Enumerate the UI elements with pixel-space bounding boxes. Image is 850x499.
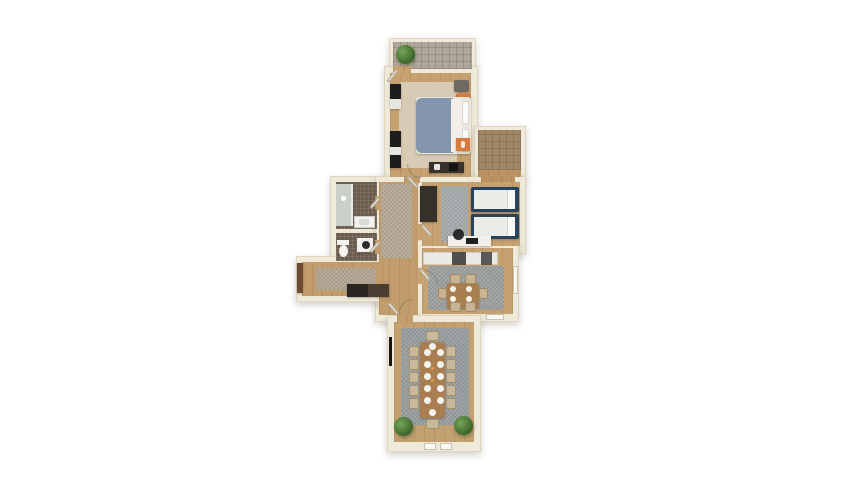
dining-chair-left-1 xyxy=(409,346,419,357)
kitchen-plate-2 xyxy=(466,286,472,292)
floor-shower xyxy=(336,184,352,226)
dining-plate-r2 xyxy=(437,361,444,368)
opening-kids-balcony xyxy=(481,176,515,182)
shower-head xyxy=(341,196,346,201)
living-plant-right xyxy=(454,416,473,435)
dining-plate-end-top xyxy=(429,343,436,350)
dining-chair-left-2 xyxy=(409,359,419,370)
dining-chair-left-4 xyxy=(409,385,419,396)
kitchen-chair-right xyxy=(479,288,488,299)
dining-plate-l4 xyxy=(424,385,431,392)
dining-chair-left-3 xyxy=(409,372,419,383)
entrance-sideboard-right xyxy=(368,284,389,297)
dining-plate-l3 xyxy=(424,373,431,380)
bedroom-dresser-white-1 xyxy=(390,99,401,109)
bed-pillow-1 xyxy=(462,101,469,124)
dining-chair-right-4 xyxy=(446,385,456,396)
bedroom-wardrobe-unit-2 xyxy=(390,131,401,147)
floor-balcony-right xyxy=(478,130,521,170)
nightstand-lamp-icon-bottom xyxy=(461,141,465,148)
dining-plate-end-bottom xyxy=(429,409,436,416)
dining-chair-head-top xyxy=(426,331,439,341)
dining-chair-head-bottom xyxy=(426,419,439,429)
dining-plate-l2 xyxy=(424,361,431,368)
dining-plate-r1 xyxy=(437,349,444,356)
kitchen-window-right xyxy=(513,266,518,294)
dining-candle-1 xyxy=(431,367,434,370)
kitchen-chair-top-2 xyxy=(465,274,476,284)
bedroom-dresser-white-2 xyxy=(390,147,401,155)
living-window-1 xyxy=(424,443,436,450)
living-plant-left xyxy=(394,417,413,436)
dining-plate-l5 xyxy=(424,397,431,404)
living-window-2 xyxy=(440,443,452,450)
dresser-lamp-item xyxy=(434,164,440,170)
balcony-plant xyxy=(396,45,415,64)
rug-hallway-runner xyxy=(381,184,412,258)
entry-door xyxy=(297,263,303,293)
dining-chair-right-1 xyxy=(446,346,456,357)
kids-wardrobe xyxy=(420,186,437,222)
toilet-bowl xyxy=(339,245,348,257)
dining-candle-2 xyxy=(431,379,434,382)
kids-bed-2-pillow xyxy=(507,217,515,236)
kitchen-plate-1 xyxy=(450,286,456,292)
dining-chair-right-5 xyxy=(446,398,456,409)
kitchen-sink-unit xyxy=(481,252,492,265)
kids-desk-chair xyxy=(453,229,464,240)
dining-chair-right-2 xyxy=(446,359,456,370)
living-tv xyxy=(389,337,392,366)
kitchen-cooktop xyxy=(452,252,466,265)
kitchen-chair-top-1 xyxy=(450,274,461,284)
kitchen-chair-bottom-1 xyxy=(450,302,461,312)
dining-chair-left-5 xyxy=(409,398,419,409)
dining-plate-r3 xyxy=(437,373,444,380)
shower-glass-panel xyxy=(351,184,353,226)
double-bed-duvet xyxy=(416,98,453,153)
dining-chair-right-3 xyxy=(446,372,456,383)
kitchen-window-bottom xyxy=(486,314,504,320)
opening-living-hallway xyxy=(397,315,413,323)
bedroom-ottoman xyxy=(454,80,469,92)
floor-plan-image xyxy=(0,0,850,499)
dining-plate-l1 xyxy=(424,349,431,356)
kids-desk-laptop xyxy=(466,238,478,244)
bedroom-wardrobe-unit-3 xyxy=(390,155,401,168)
dresser-dark-item xyxy=(449,163,458,171)
kids-bed-1-pillow xyxy=(507,190,515,209)
kitchen-chair-left xyxy=(438,288,447,299)
bathroom-sink-basin xyxy=(359,219,369,225)
bedroom-wardrobe-unit-1 xyxy=(390,84,401,99)
dining-plate-r5 xyxy=(437,397,444,404)
washing-machine-door xyxy=(362,241,370,249)
dining-plate-r4 xyxy=(437,385,444,392)
kitchen-chair-bottom-2 xyxy=(465,302,476,312)
